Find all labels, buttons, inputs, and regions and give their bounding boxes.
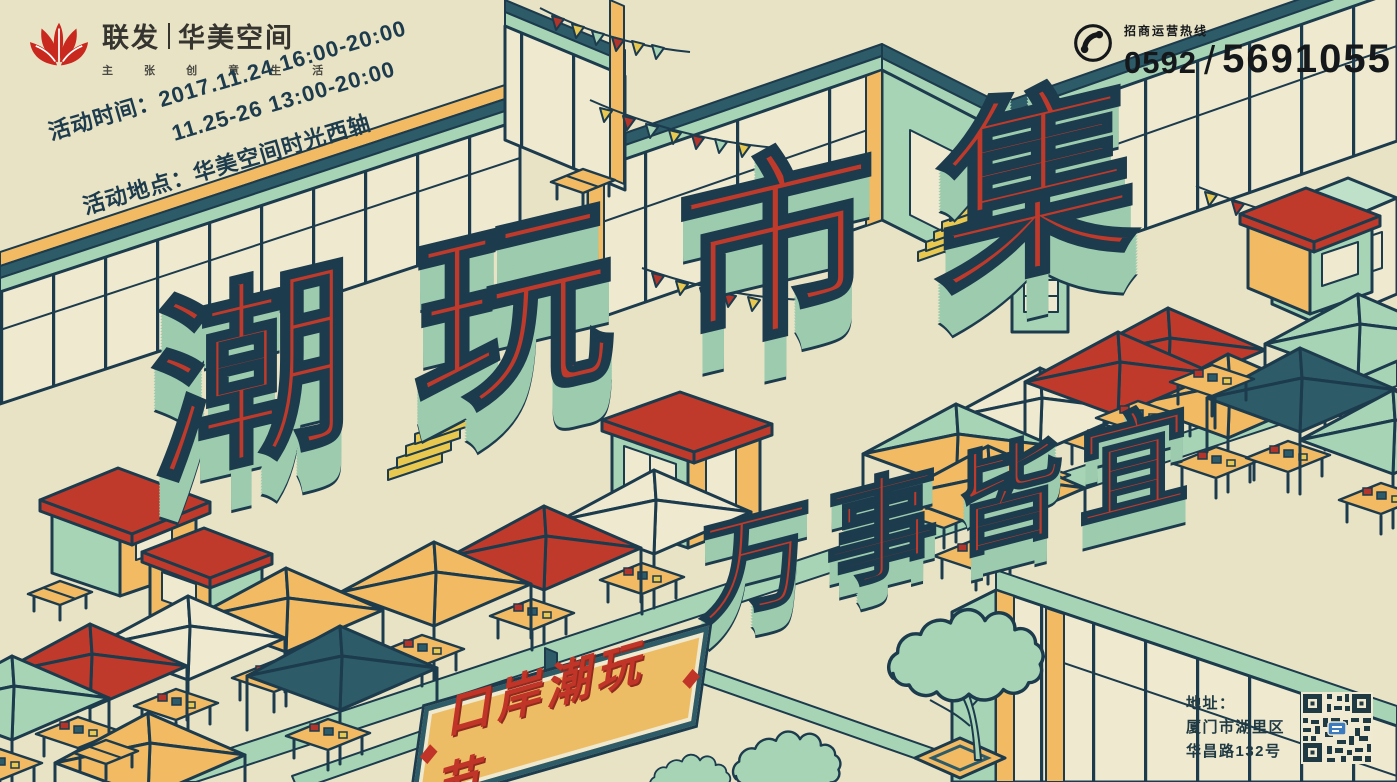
qr-code (1301, 692, 1373, 764)
phone-icon (1072, 22, 1114, 64)
lianfa-flower-icon (28, 16, 90, 72)
hotline-number: 5691055 (1222, 42, 1392, 76)
subtitle-char: 皆 (952, 428, 1064, 569)
title-char: 集 (938, 63, 1138, 311)
subtitle-char: 宜 (1078, 395, 1190, 536)
title-char: 玩 (414, 189, 614, 437)
address-line2: 华昌路132号 (1186, 740, 1285, 764)
address-line1: 厦门市湖里区 (1186, 716, 1285, 740)
hotline: 招商运营热线 0592 / 5691055 (1072, 22, 1392, 76)
address-label: 地址： (1186, 692, 1285, 716)
sign-diamond-right (682, 668, 700, 688)
title-char: 潮 (152, 252, 352, 500)
title-char: 市 (676, 126, 876, 374)
address-block: 地址： 厦门市湖里区 华昌路132号 (1186, 692, 1373, 764)
poster: 潮 玩 市 集 万 事 皆 宜 口岸潮玩节 联发 华美空间 主 张 创 意 生 (0, 0, 1397, 782)
hotline-slash: / (1204, 44, 1215, 78)
subtitle-char: 事 (826, 460, 938, 601)
hotline-area-code: 0592 (1124, 50, 1197, 76)
sign-diamond-left (420, 744, 438, 764)
subtitle-char: 万 (700, 493, 812, 634)
brand-name-primary: 联发 (102, 16, 160, 55)
brand-divider (168, 23, 170, 49)
